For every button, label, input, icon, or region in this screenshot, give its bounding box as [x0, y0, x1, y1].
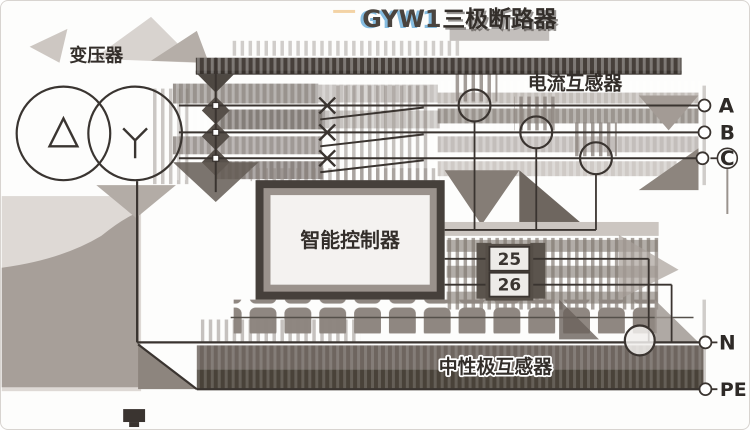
diagram-canvas: 25 26 GYW1 GYW1 三极断路器 三极断路器 变压器 电流互感器 智能… [1, 1, 749, 429]
wye-winding-icon [123, 128, 147, 158]
phase-a-label: A [719, 94, 735, 117]
terminal-c-circle [696, 152, 708, 164]
neutral-label: N [719, 331, 736, 354]
delta-winding-icon [50, 118, 78, 146]
neutral-transformer-label: 中性极互感器 [439, 355, 554, 378]
current-transformer-label: 电流互感器 [528, 72, 624, 95]
phase-b-label: B [720, 121, 735, 144]
terminal-pe-circle [699, 383, 711, 395]
transformer-label: 变压器 [69, 45, 124, 67]
phase-c-label: C [720, 147, 735, 170]
pe-label: PE [720, 379, 747, 401]
wiring-diagram: 25 26 GYW1 GYW1 三极断路器 三极断路器 变压器 电流互感器 智能… [0, 0, 750, 430]
controller-label: 智能控制器 [300, 228, 401, 252]
terminal-26-label: 26 [498, 275, 522, 295]
neutral-ct-circle [625, 325, 655, 355]
terminal-b-circle [698, 126, 710, 138]
transformer-primary-circle [17, 87, 111, 181]
terminal-n-circle [699, 336, 711, 348]
terminal-a-circle [698, 100, 710, 112]
title-model: GYW1 [362, 5, 441, 33]
title-name: 三极断路器 [442, 6, 558, 33]
terminal-25-label: 25 [498, 249, 522, 269]
